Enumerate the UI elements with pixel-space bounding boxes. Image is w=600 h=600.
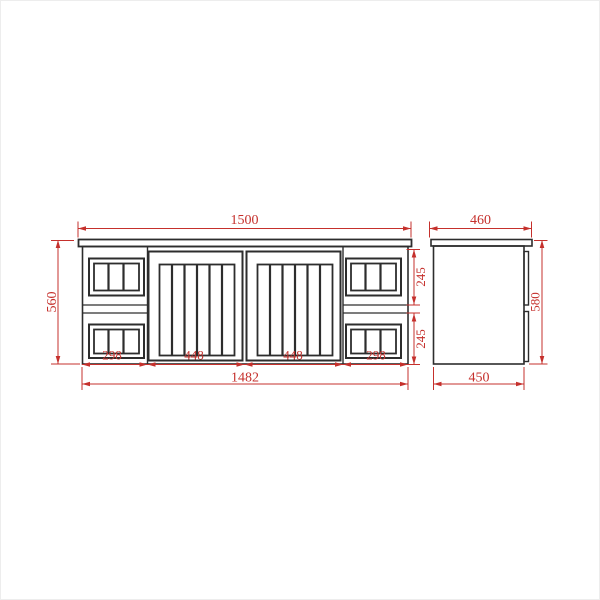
left-upper-drawer [89,259,144,296]
dim-label-448-left: 448 [184,348,204,363]
dim-label-298-right: 298 [366,348,386,363]
drawer-panel [351,264,396,291]
dim-front-overall-height: 560 [45,240,80,364]
dim-label-245-upper: 245 [413,267,428,287]
left-door-slats [172,265,222,356]
drawer-panel [94,264,139,291]
left-door [149,252,243,361]
dim-front-overall-width: 1500 [78,213,411,238]
side-countertop [431,240,532,247]
side-lower-front-edge [524,312,529,362]
dim-label-448-right: 448 [283,348,303,363]
dim-label-1500: 1500 [231,213,259,228]
dim-label-560: 560 [45,292,60,313]
dim-side-height: 580 [528,240,548,364]
dim-label-1482: 1482 [231,371,259,386]
front-countertop [79,240,412,247]
drawer-slats [366,264,381,291]
dim-front-drawer-heights: 245 245 [407,250,429,365]
right-upper-drawer [346,259,401,296]
right-door-slats [270,265,320,356]
dim-side-bottom-depth: 450 [434,367,525,390]
drawer-slats [109,264,124,291]
vanity-dimension-drawing: 1500 560 245 245 298 448 448 298 1482 46… [1,1,599,599]
dim-label-460: 460 [470,213,491,228]
dim-front-base-width: 1482 [82,367,408,390]
drawing-page: 1500 560 245 245 298 448 448 298 1482 46… [0,0,600,600]
dim-label-450: 450 [469,371,490,386]
side-cabinet-body [434,246,525,364]
side-view [431,240,532,365]
drawer-rails [83,305,409,313]
dim-side-top-depth: 460 [430,213,532,238]
dim-label-580: 580 [528,292,543,312]
front-view [79,240,412,365]
right-door [247,252,341,361]
dim-label-245-lower: 245 [413,329,428,349]
dim-label-298-left: 298 [102,348,122,363]
